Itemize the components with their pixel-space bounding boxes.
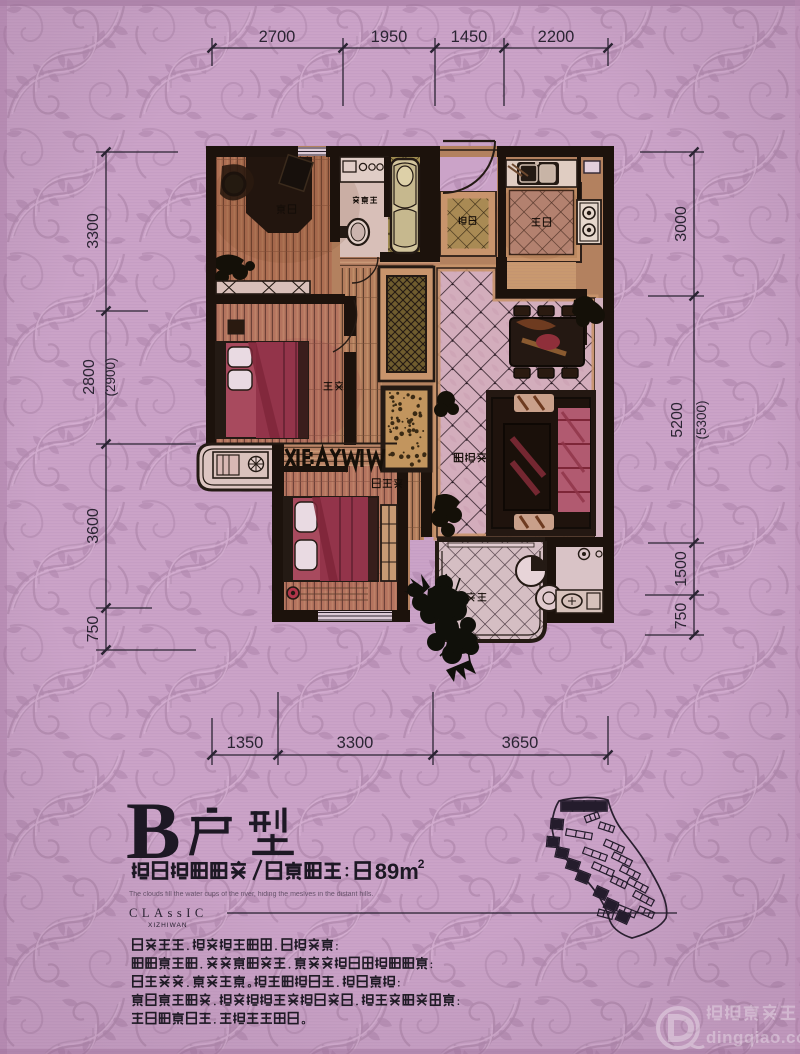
svg-text:XIZHIWAN: XIZHIWAN [148, 922, 188, 929]
svg-text:dingqiao.cc: dingqiao.cc [706, 1028, 800, 1047]
svg-text:3300: 3300 [85, 213, 102, 249]
svg-text:1950: 1950 [371, 28, 408, 46]
svg-text:2200: 2200 [538, 28, 575, 46]
svg-text:(2900): (2900) [103, 357, 118, 396]
svg-text:2700: 2700 [259, 28, 296, 46]
svg-text:750: 750 [673, 603, 690, 630]
svg-text:3650: 3650 [502, 734, 539, 752]
svg-text:1450: 1450 [451, 28, 488, 46]
svg-text:(5300): (5300) [694, 400, 709, 439]
svg-text:750: 750 [85, 616, 102, 643]
svg-text:2800: 2800 [81, 359, 98, 395]
svg-text:5200: 5200 [669, 402, 686, 438]
svg-text:3600: 3600 [85, 508, 102, 544]
svg-text:3300: 3300 [337, 734, 374, 752]
svg-text:2: 2 [418, 857, 425, 871]
svg-text:The clouds fill the water cups: The clouds fill the water cups of the ri… [129, 891, 373, 898]
svg-text:89m: 89m [375, 859, 419, 884]
svg-text:1500: 1500 [673, 551, 690, 587]
svg-text:3000: 3000 [673, 206, 690, 242]
svg-text:CLAssIC: CLAssIC [129, 906, 208, 920]
svg-text:1350: 1350 [227, 734, 264, 752]
